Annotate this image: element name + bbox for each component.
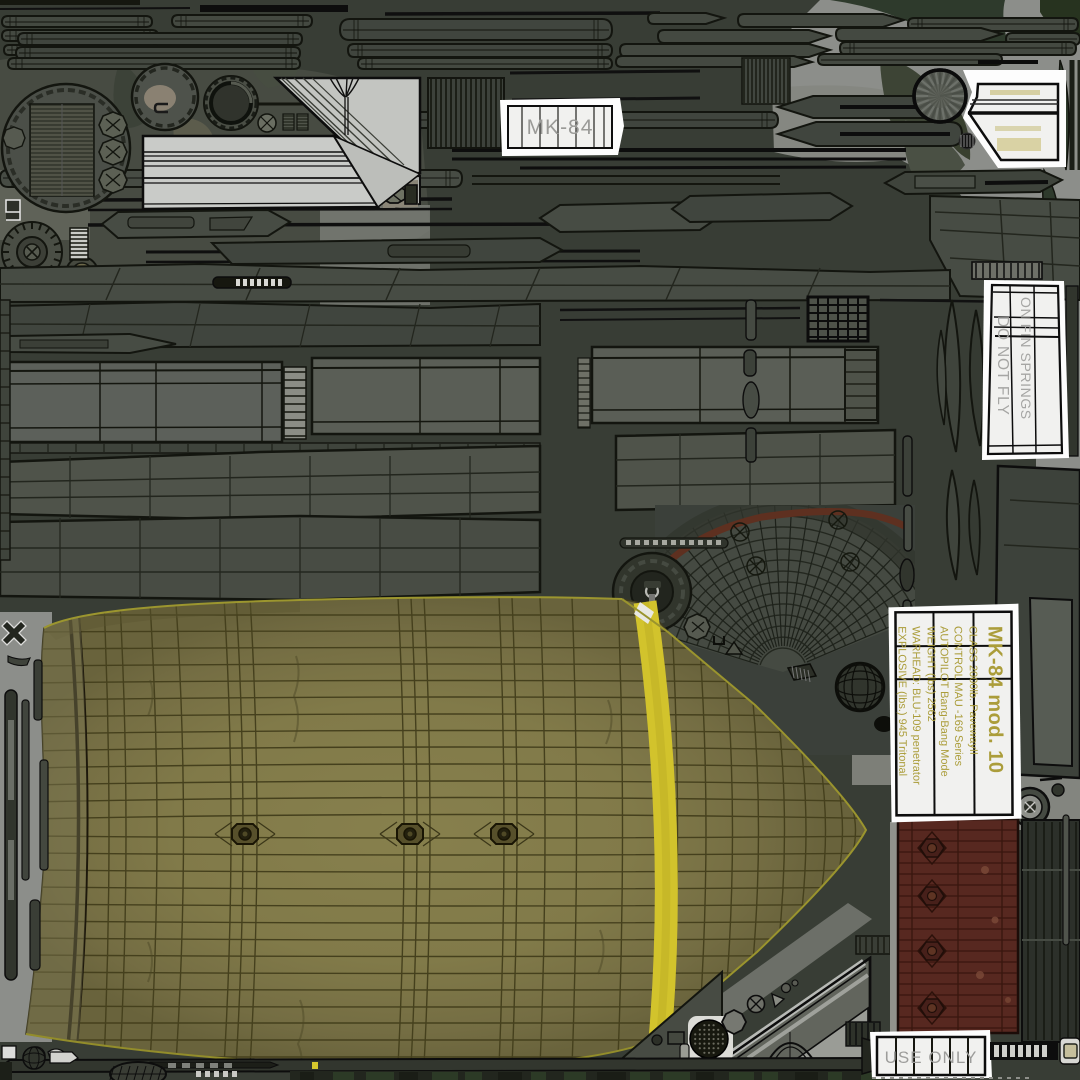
svg-text:MK-84: MK-84 [527, 116, 594, 139]
svg-text:CONTROL MAU -169 Series: CONTROL MAU -169 Series [952, 626, 965, 767]
svg-text:EXPLOSIVE (lbs.) 945 Tritonal: EXPLOSIVE (lbs.) 945 Tritonal [896, 626, 909, 776]
svg-text:ON FIN SPRINGS: ON FIN SPRINGS [1018, 297, 1034, 420]
svg-text:CLASS 2000lb. PavewayII: CLASS 2000lb. PavewayII [967, 626, 980, 755]
svg-text:DO NOT FLY: DO NOT FLY [994, 316, 1011, 416]
svg-text:WARHEAD: BLU-109 penetrator: WARHEAD: BLU-109 penetrator [910, 626, 923, 785]
svg-text:USE ONLY: USE ONLY [885, 1048, 978, 1067]
svg-text:WEIGHT (lbs) 2562: WEIGHT (lbs) 2562 [925, 626, 938, 722]
svg-text:MK-84 mod. 10: MK-84 mod. 10 [984, 626, 1007, 774]
svg-text:AUTOPILOT Bang-Bang Mode: AUTOPILOT Bang-Bang Mode [938, 626, 951, 777]
